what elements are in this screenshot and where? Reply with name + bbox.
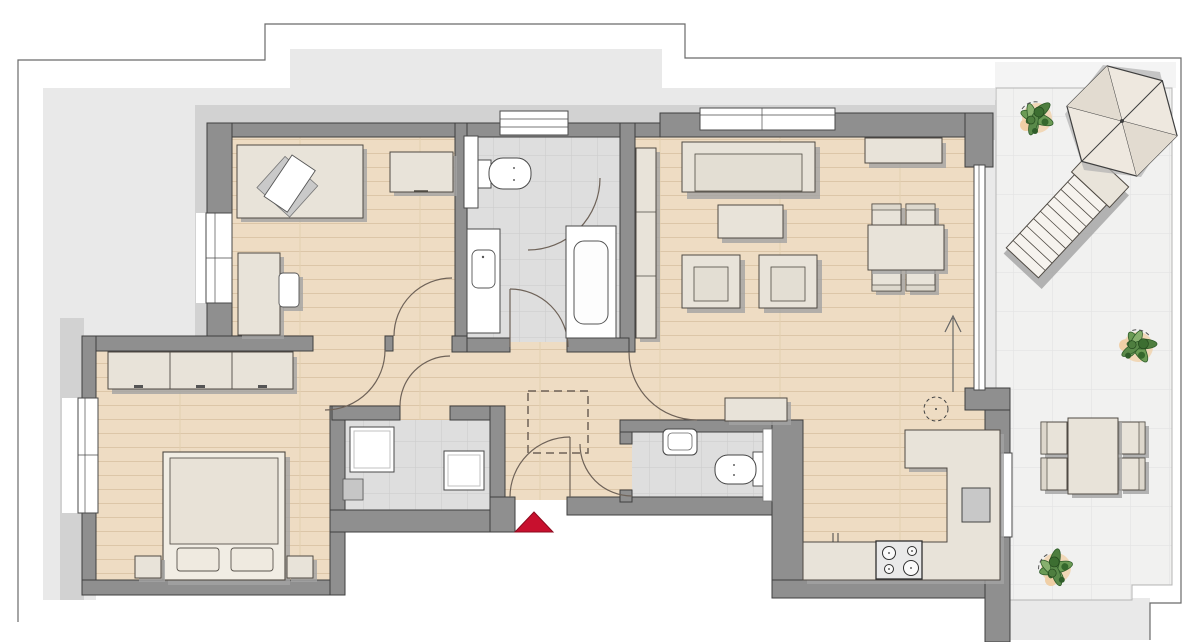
bathtub <box>566 226 616 338</box>
window-sill <box>196 213 206 303</box>
window-sill <box>62 398 78 513</box>
door-leaf <box>763 429 772 501</box>
bedroom-window <box>78 398 98 513</box>
entrance-marker-icon <box>515 512 553 532</box>
washing-machine <box>350 427 394 472</box>
floor-plan-page <box>0 0 1200 642</box>
side-desk <box>238 253 280 335</box>
floor-plan <box>0 0 1200 642</box>
sideboard <box>865 138 942 163</box>
office-window <box>206 213 232 303</box>
duct-column <box>343 479 363 500</box>
tall-cabinet <box>636 148 656 338</box>
pillow <box>177 548 219 571</box>
dining-set <box>868 204 948 295</box>
living-room-window <box>700 108 835 130</box>
console-cabinet <box>725 398 787 421</box>
side-chair <box>279 273 299 307</box>
dryer <box>444 451 484 490</box>
terrace-glazing <box>974 165 985 390</box>
washbasin-counter <box>467 229 500 333</box>
coffee-table <box>718 205 783 238</box>
nightstand <box>135 556 161 578</box>
kitchen-sink <box>962 488 990 522</box>
nightstand <box>287 556 313 578</box>
outdoor-dining-set <box>1041 418 1149 498</box>
toilet <box>478 158 531 189</box>
washbasin <box>663 429 697 455</box>
wardrobe <box>108 352 293 389</box>
cabinet <box>390 152 453 192</box>
bathroom-window <box>500 111 568 135</box>
cooktop <box>876 541 922 579</box>
pillow <box>231 548 273 571</box>
double-bed <box>163 452 290 585</box>
outdoor-table <box>1068 418 1118 494</box>
dining-table <box>868 225 944 270</box>
toilet <box>715 452 764 486</box>
